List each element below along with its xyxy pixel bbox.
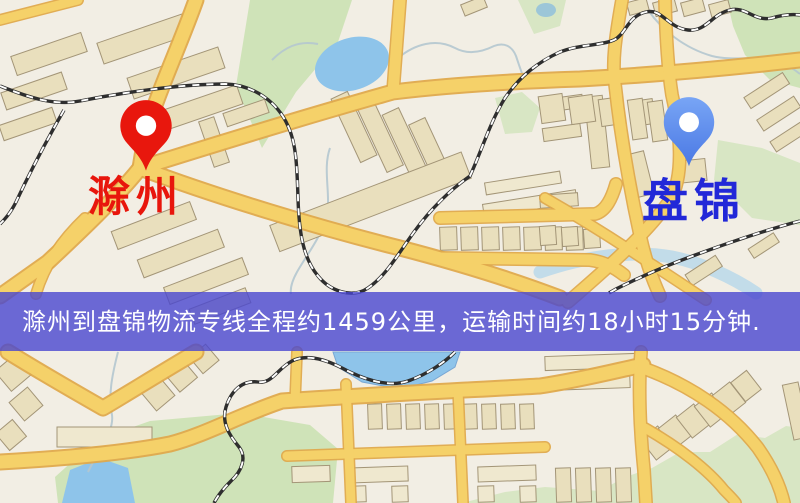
map-image: [0, 0, 800, 503]
origin-city-label: 滁州: [88, 176, 184, 218]
pond-tiny: [536, 3, 556, 17]
map-container: 滁州 盘锦 滁州到盘锦物流专线全程约1459公里，运输时间约18小时15分钟.: [0, 0, 800, 503]
route-info-banner: 滁州到盘锦物流专线全程约1459公里，运输时间约18小时15分钟.: [0, 292, 800, 351]
route-info-text: 滁州到盘锦物流专线全程约1459公里，运输时间约18小时15分钟.: [22, 302, 761, 337]
destination-city-label: 盘锦: [642, 178, 746, 224]
